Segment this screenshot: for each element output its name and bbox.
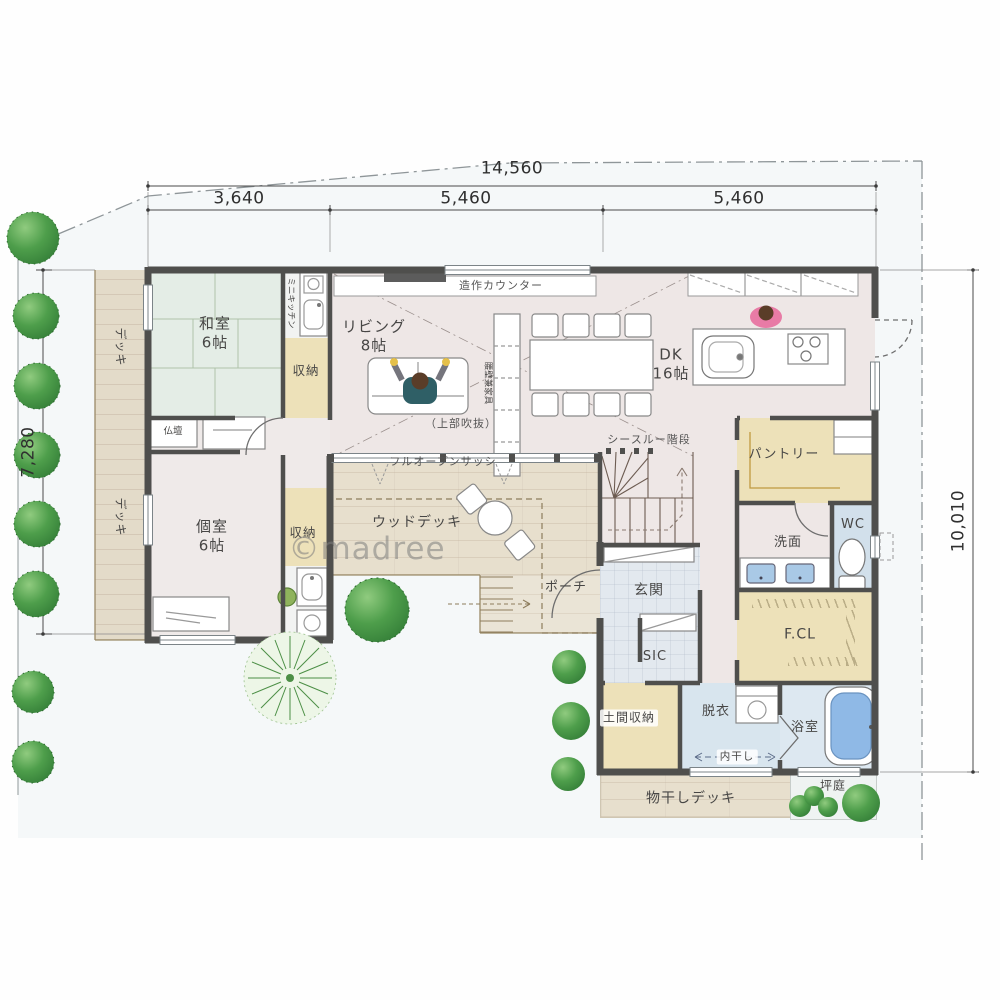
plant: [278, 588, 296, 606]
bathtub: [825, 687, 877, 765]
label-see-through-stairs: シースルー階段: [607, 433, 690, 447]
mini-kitchen-unit: [300, 272, 327, 336]
kitchen-island: [693, 329, 845, 385]
label-living: リビング8帖: [342, 317, 406, 355]
upper-cabinets: [688, 272, 858, 296]
floor-plan-canvas: 14,560 3,640 5,460 5,460 7,280 10,010 和室…: [0, 0, 1000, 1000]
label-butsudan: 仏壇: [163, 426, 182, 438]
dim-left-height: 7,280: [18, 426, 39, 477]
label-datsui: 脱衣: [702, 704, 730, 720]
label-wood-deck: ウッドデッキ: [372, 514, 462, 532]
label-laundry-deck: 物干しデッキ: [646, 790, 736, 808]
label-genkan: 玄関: [634, 582, 664, 600]
label-wc: WC: [841, 517, 865, 533]
label-closet-north: 収納: [292, 363, 319, 379]
dandelion-tree: [244, 632, 336, 724]
label-built-in-counter: 造作カウンター: [459, 279, 543, 293]
tv-chest: [203, 417, 265, 449]
plan-linework: [0, 0, 1000, 1000]
label-mini-kitchen: ミニキッチン: [285, 277, 296, 328]
label-washroom: 洗面: [774, 535, 802, 551]
label-family-closet: F.CL: [784, 626, 816, 644]
dim-segment-3: 5,460: [713, 188, 764, 209]
toilet-wc: [839, 539, 865, 590]
label-indoor-drying: 内干し: [717, 749, 758, 764]
label-porch: ポーチ: [545, 580, 587, 596]
label-doma-storage: 土間収納: [600, 710, 658, 727]
half-wall-shelf: [494, 314, 520, 476]
label-koshitsu: 個室6帖: [196, 517, 228, 555]
label-upper-void: （上部吹抜）: [425, 417, 497, 431]
tv: [384, 273, 446, 282]
dim-segment-2: 5,460: [440, 188, 491, 209]
label-pantry: パントリー: [749, 447, 820, 463]
faucet: [737, 354, 743, 360]
dim-total-width: 14,560: [481, 158, 543, 179]
label-full-open-sash: フルオープンサッシ: [389, 455, 496, 469]
label-washitsu: 和室6帖: [199, 314, 231, 352]
label-half-wall-furniture: 腰壁兼家具: [482, 362, 493, 405]
washing-machine: [736, 686, 778, 723]
label-tsubo-garden: 坪庭: [820, 779, 846, 794]
label-sic: SIC: [643, 649, 667, 665]
dim-right-height: 10,010: [948, 490, 969, 552]
label-deck-south: デッキ: [113, 497, 128, 536]
desk: [153, 597, 229, 631]
label-deck-north: デッキ: [113, 327, 128, 366]
label-bathroom: 浴室: [791, 720, 819, 736]
dim-segment-1: 3,640: [213, 188, 264, 209]
vanity-counter: [740, 558, 830, 588]
watermark: ©madree: [288, 531, 445, 567]
label-dk: DK16帖: [652, 345, 689, 383]
